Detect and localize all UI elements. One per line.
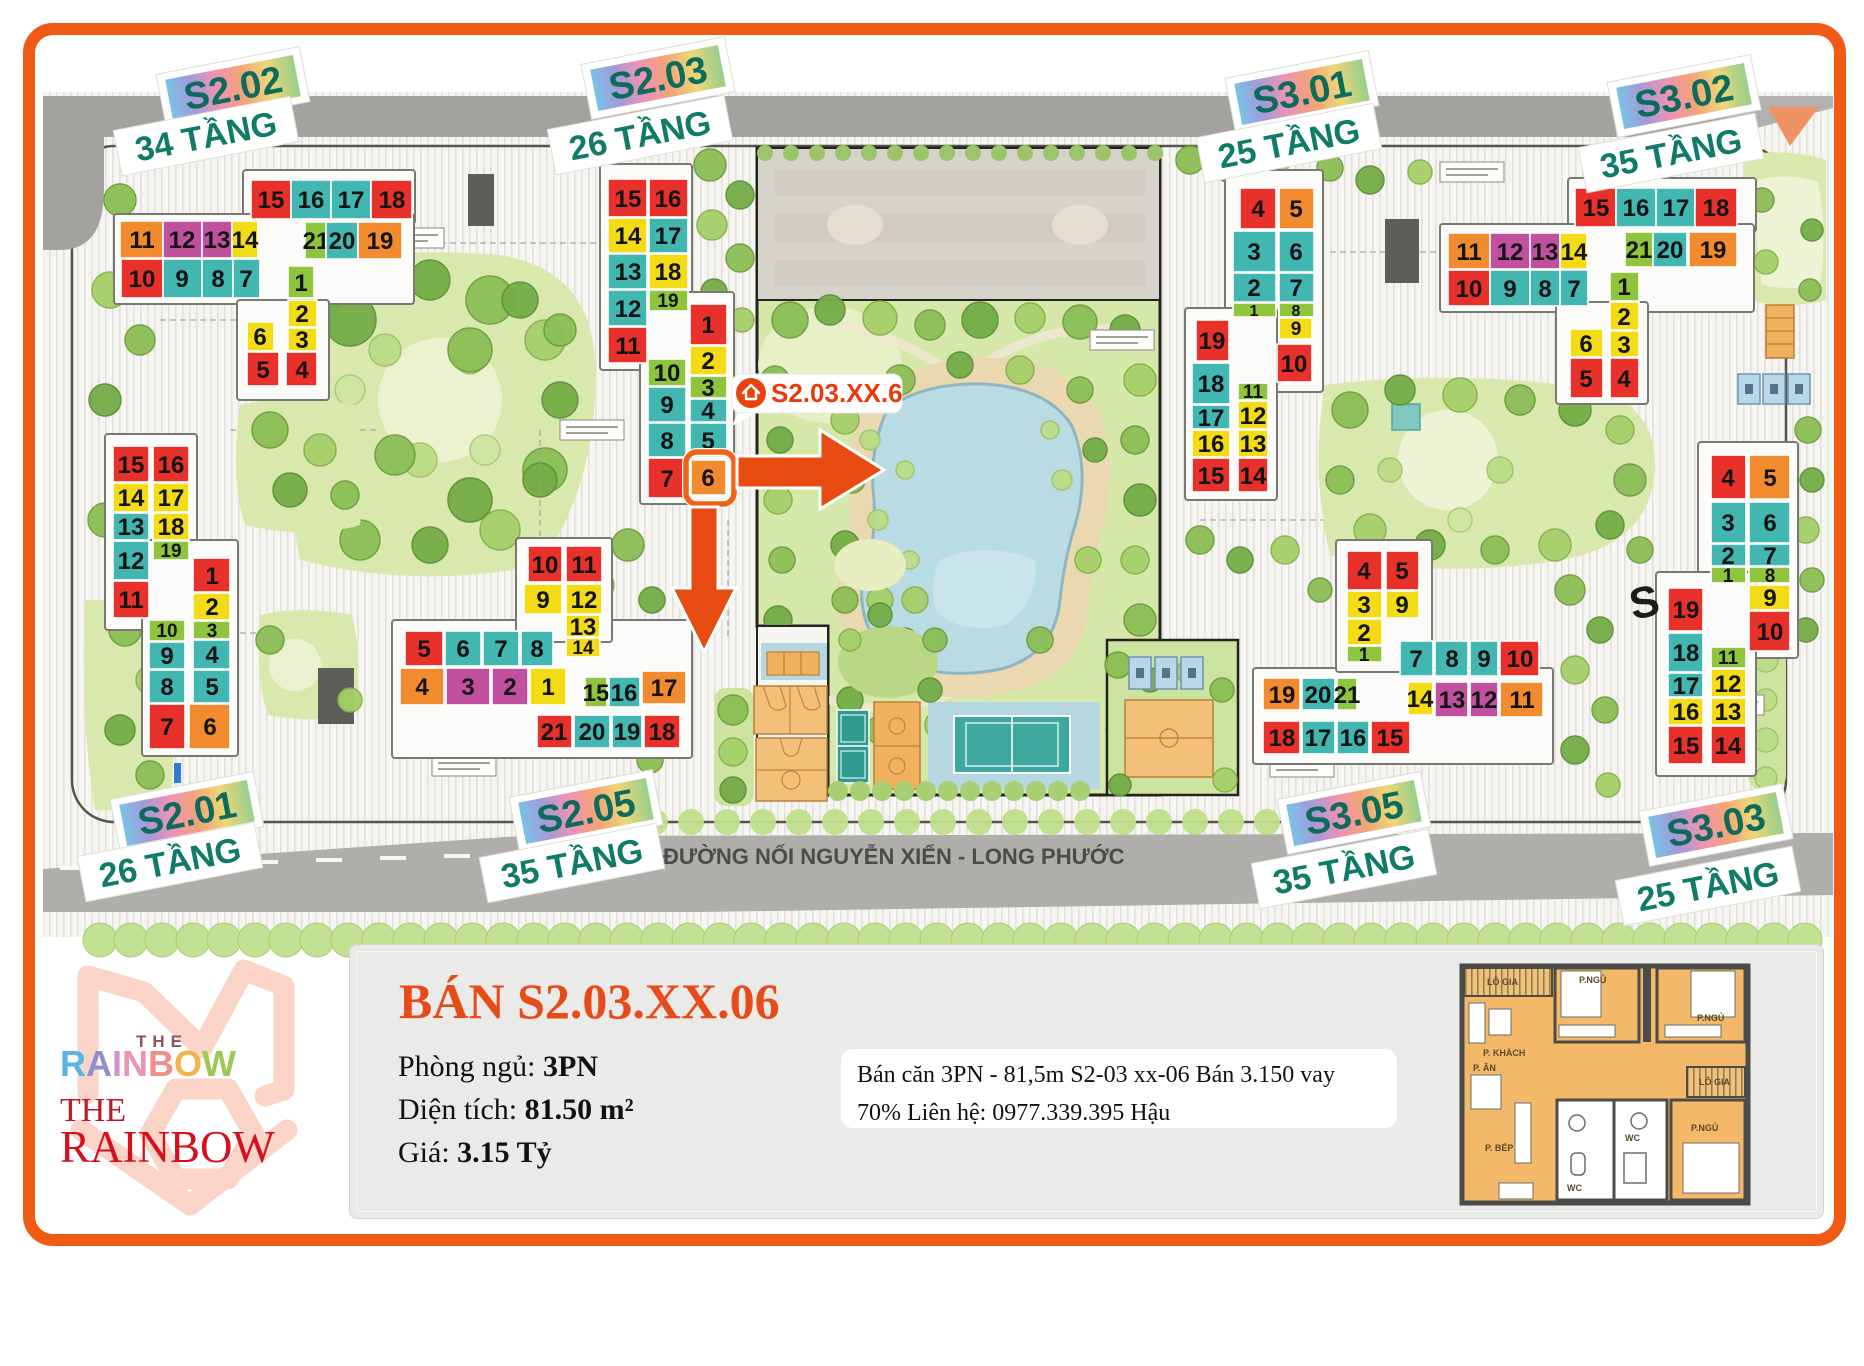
svg-text:LÔ GIA: LÔ GIA	[1487, 976, 1518, 987]
svg-text:P. KHÁCH: P. KHÁCH	[1483, 1048, 1525, 1058]
svg-text:LÔ GIA: LÔ GIA	[1699, 1076, 1730, 1087]
svg-text:P. BẾP: P. BẾP	[1485, 1143, 1513, 1153]
svg-text:RAINBOW: RAINBOW	[60, 1122, 276, 1172]
svg-text:P.NGỦ: P.NGỦ	[1579, 974, 1606, 985]
svg-text:WC: WC	[1625, 1133, 1640, 1143]
svg-text:P. ĂN: P. ĂN	[1473, 1063, 1496, 1073]
svg-text:P.NGỦ: P.NGỦ	[1691, 1122, 1718, 1133]
svg-text:WC: WC	[1567, 1183, 1582, 1193]
svg-text:P.NGỦ: P.NGỦ	[1697, 1012, 1724, 1023]
svg-text:RAINBOW: RAINBOW	[60, 1043, 236, 1084]
